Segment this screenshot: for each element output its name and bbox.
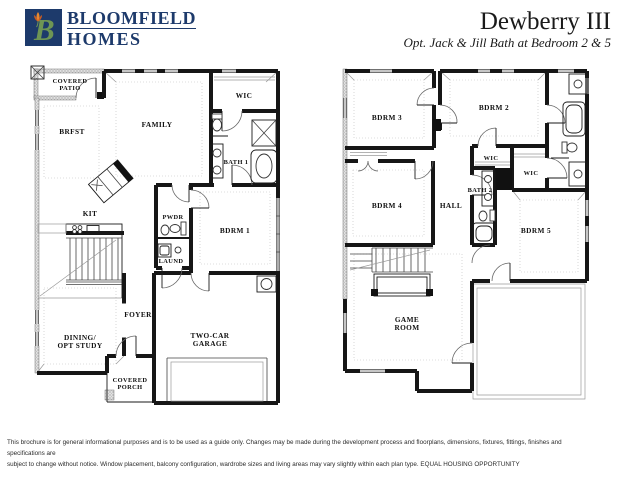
wall-chunk: [495, 168, 512, 190]
room-label-bdrm4: BDRM 4: [372, 201, 402, 210]
room-label-bdrm2: BDRM 2: [479, 103, 509, 112]
logo-monogram-icon: B: [25, 9, 62, 46]
plan-subtitle: Opt. Jack & Jill Bath at Bedroom 2 & 5: [404, 35, 611, 50]
room-label-porch: COVERED: [113, 377, 148, 384]
logo-text: BLOOMFIELD HOMES: [67, 9, 196, 48]
floor2-labels: BDRM 3 BDRM 2 WIC WIC BATH 2 BDRM 4 HALL…: [372, 103, 551, 332]
room-label-brfst: BRFST: [59, 127, 85, 136]
svg-text:PATIO: PATIO: [59, 85, 80, 92]
staircase-2: [350, 248, 433, 296]
plan-title: Dewberry III: [404, 8, 611, 35]
logo-line1: BLOOMFIELD: [67, 9, 196, 29]
room-label-covered-patio: COVERED: [53, 78, 88, 85]
room-label-wic: WIC: [236, 91, 253, 100]
disclaimer-line1: This brochure is for general information…: [7, 437, 599, 459]
bath2-fixtures: [473, 171, 495, 244]
title-block: Dewberry III Opt. Jack & Jill Bath at Be…: [404, 8, 611, 50]
room-label-laund: LAUND: [159, 258, 184, 265]
roof-outline: [473, 284, 585, 399]
hatched-walls-2: [343, 69, 347, 299]
first-floor-plan: COVERED PATIO BRFST FAMILY WIC BATH 1 KI…: [4, 58, 304, 428]
room-label-bdrm5: BDRM 5: [521, 226, 551, 235]
disclaimer: This brochure is for general information…: [7, 437, 599, 470]
logo-letter: B: [33, 12, 55, 46]
room-label-kit: KIT: [83, 209, 98, 218]
brochure-page: B BLOOMFIELD HOMES Dewberry III Opt. Jac…: [0, 0, 621, 479]
room-label-pwdr: PWDR: [162, 214, 183, 221]
room-label-wic-b: WIC: [524, 170, 539, 177]
bath-jackjill-fixtures: [551, 74, 587, 186]
bloomfield-logo: B BLOOMFIELD HOMES: [25, 9, 196, 48]
room-label-foyer: FOYER: [124, 310, 152, 319]
second-floor-plan: BDRM 3 BDRM 2 WIC WIC BATH 2 BDRM 4 HALL…: [330, 58, 620, 403]
kitchen-fixtures: [38, 160, 133, 233]
svg-text:PORCH: PORCH: [117, 384, 142, 391]
kitchen-island: [88, 160, 133, 203]
room-label-wic-a: WIC: [484, 155, 499, 162]
shelving-lines: [350, 153, 545, 166]
room-label-bdrm1: BDRM 1: [220, 226, 250, 235]
room-label-hall: HALL: [440, 201, 462, 210]
room-label-bdrm3: BDRM 3: [372, 113, 402, 122]
room-label-bath2: BATH 2: [468, 187, 493, 194]
utility-fixtures: [158, 222, 276, 401]
svg-text:ROOM: ROOM: [394, 323, 419, 332]
room-label-family: FAMILY: [142, 120, 173, 129]
wall-chunk: [433, 119, 441, 131]
svg-text:OPT STUDY: OPT STUDY: [57, 341, 102, 350]
room-label-bath1: BATH 1: [224, 159, 249, 166]
disclaimer-line2: subject to change without notice. Window…: [7, 459, 599, 470]
svg-text:GARAGE: GARAGE: [193, 339, 227, 348]
logo-line2: HOMES: [67, 30, 196, 48]
